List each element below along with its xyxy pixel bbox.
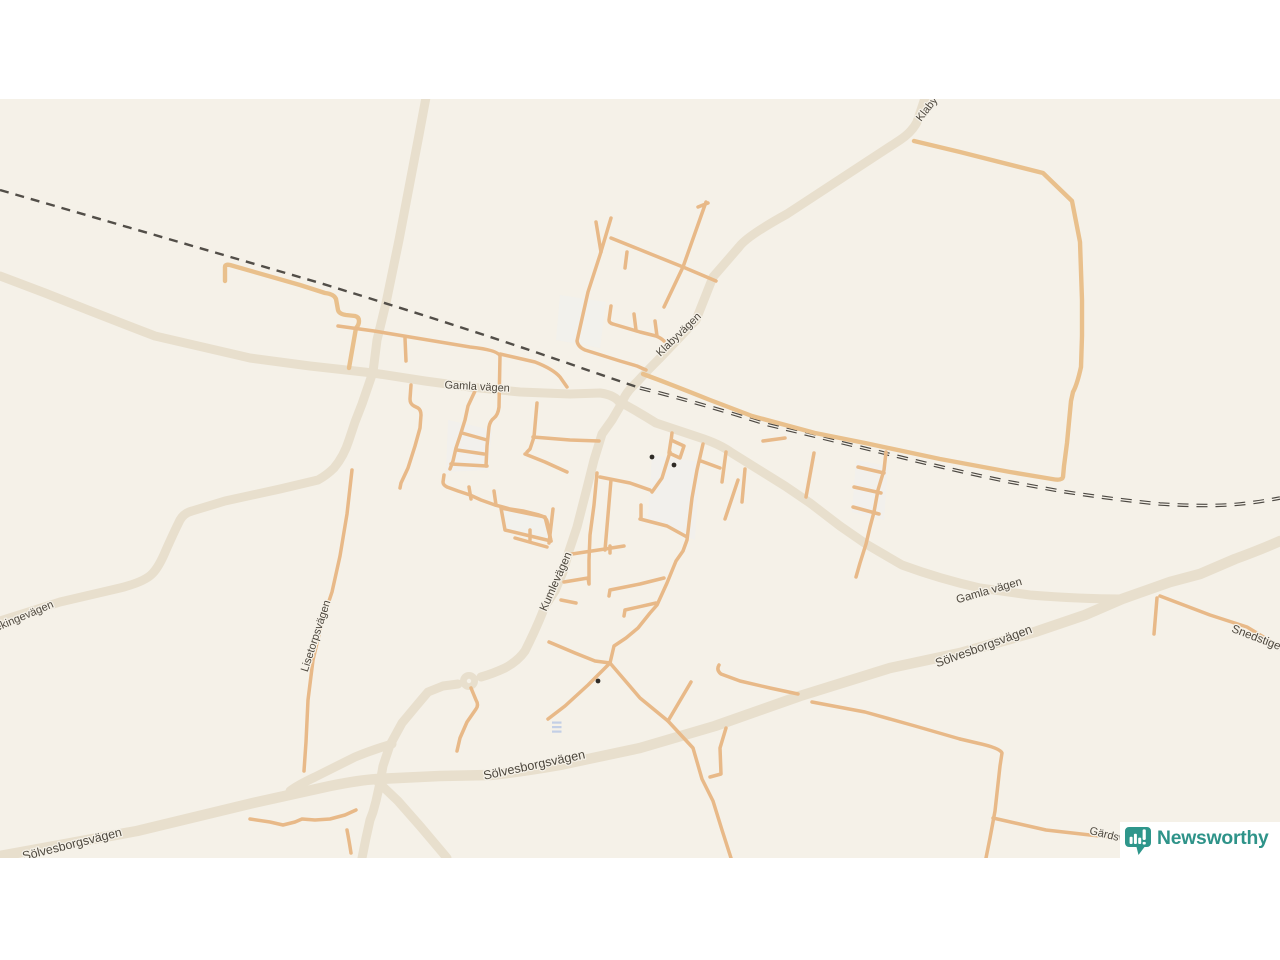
svg-text:Newsworthy: Newsworthy xyxy=(1157,828,1269,849)
